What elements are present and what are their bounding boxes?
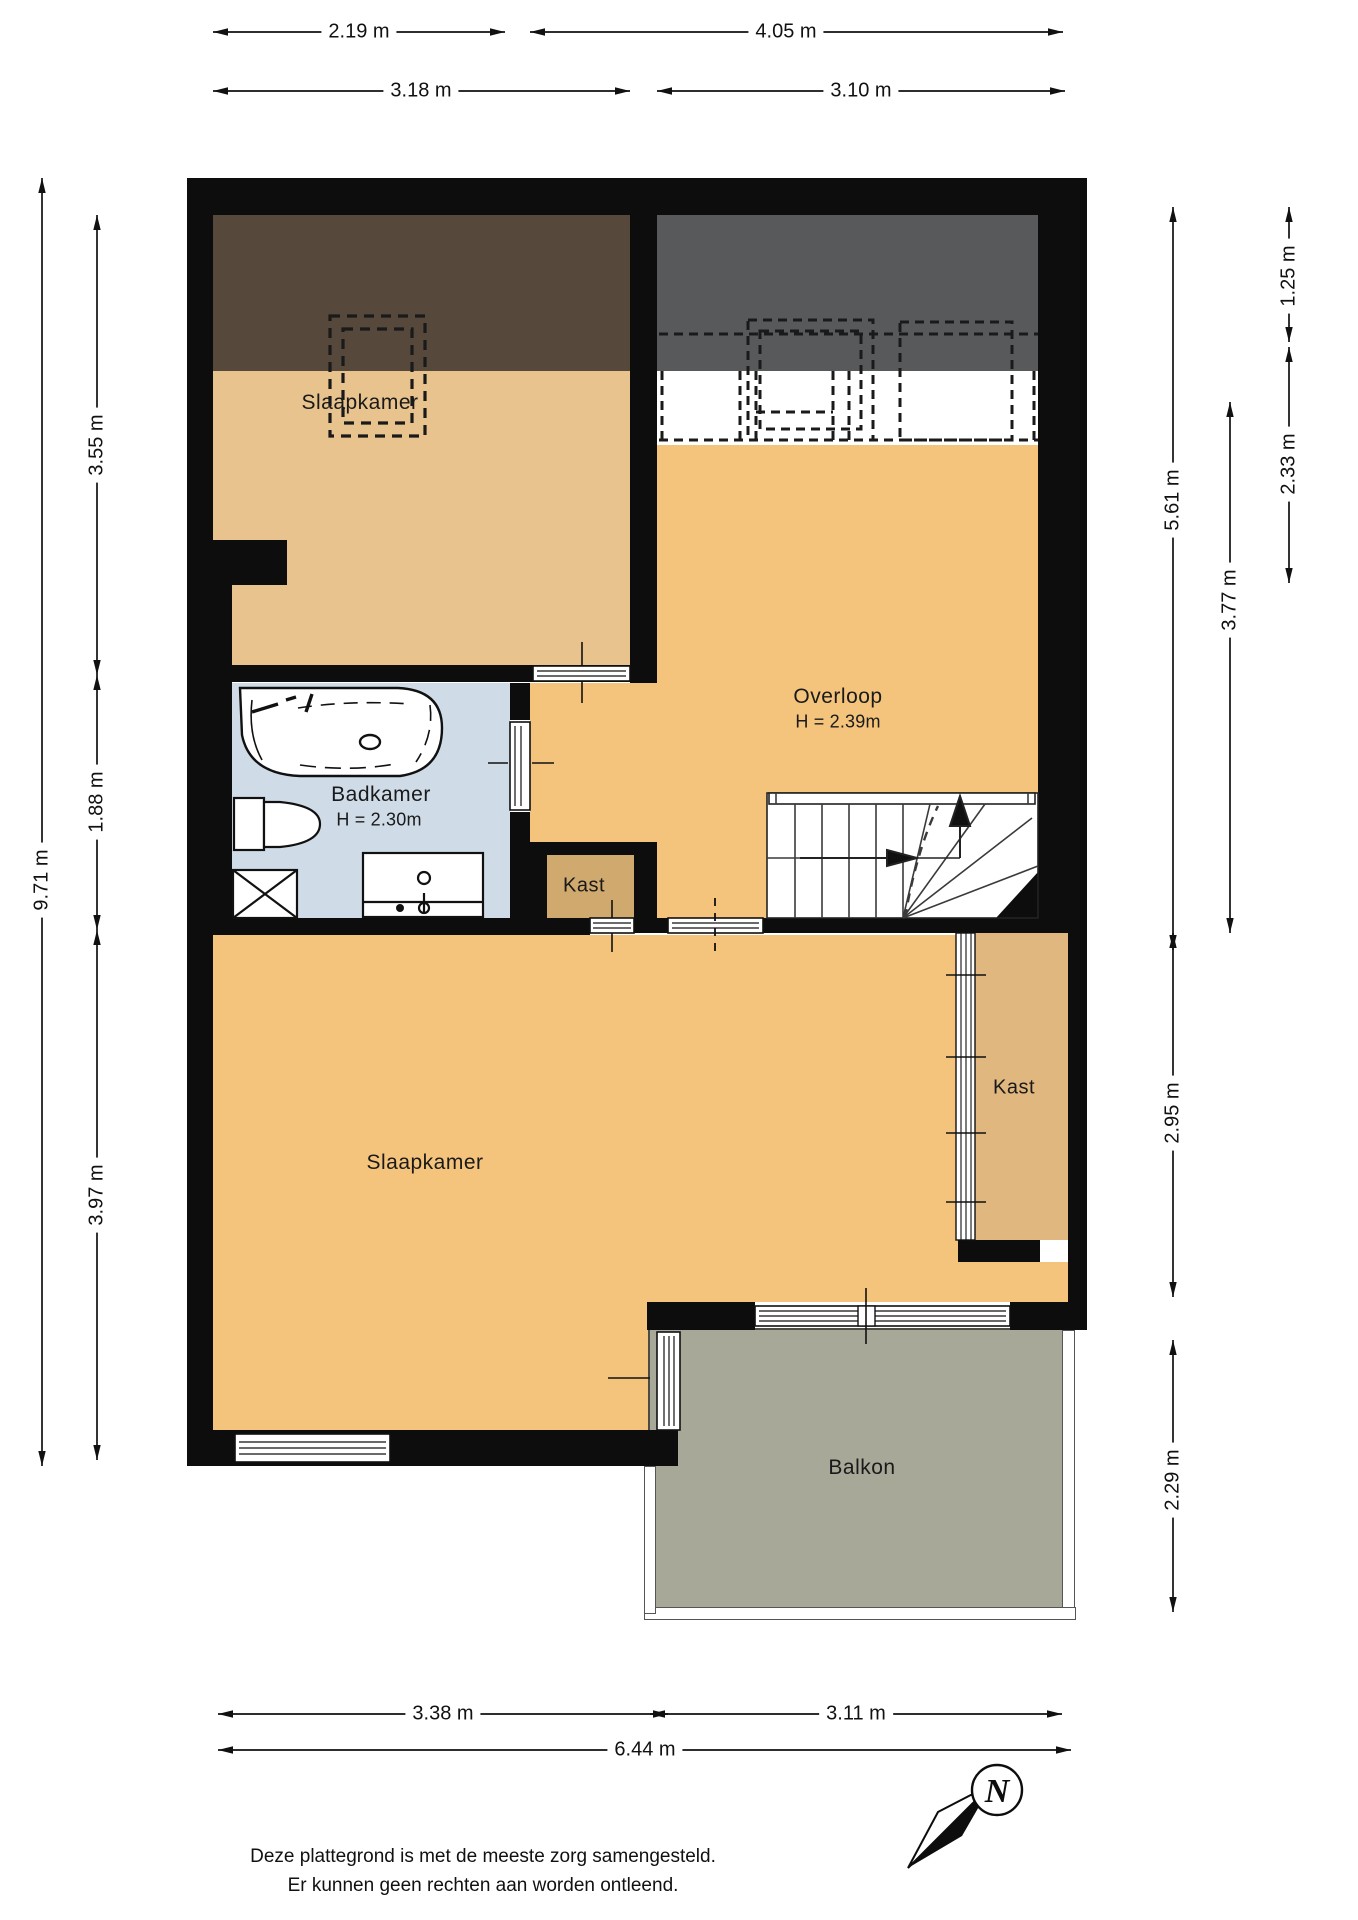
window-bottom-left	[235, 1434, 390, 1462]
skylight-dashed-box	[330, 316, 425, 436]
shaft-x-box	[233, 870, 297, 918]
label-balkon: Balkon	[828, 1456, 895, 1480]
dim-left-total: 9.71 m	[31, 842, 54, 917]
dim-top-left-upper: 2.19 m	[321, 21, 396, 44]
dim-bottom-right: 3.11 m	[819, 1703, 893, 1726]
dim-right-229: 2.29 m	[1162, 1442, 1185, 1517]
dim-right-377: 3.77 m	[1219, 562, 1242, 637]
dormer-dashed-lines	[659, 320, 1038, 443]
vanity-sink	[363, 853, 483, 917]
dim-bottom-left: 3.38 m	[405, 1703, 480, 1726]
label-kast-middle: Kast	[563, 875, 605, 898]
dim-top-right-upper: 4.05 m	[748, 21, 823, 44]
door-badkamer	[488, 722, 554, 810]
dim-top-right-lower: 3.10 m	[823, 80, 898, 103]
label-badkamer: Badkamer	[331, 783, 431, 807]
dim-left-upper: 3.55 m	[86, 407, 109, 482]
door-kast-middle	[590, 900, 634, 952]
dimension-arrows	[42, 32, 1289, 1750]
label-overloop-height: H = 2.39m	[795, 712, 880, 733]
compass-north-text: N	[984, 1773, 1011, 1810]
dim-top-left-lower: 3.18 m	[383, 80, 458, 103]
door-slaapkamer-top	[533, 642, 630, 703]
toilet	[234, 798, 320, 850]
window-balkon-front	[755, 1288, 1010, 1344]
dim-bottom-total: 6.44 m	[607, 1739, 682, 1762]
label-badkamer-height: H = 2.30m	[336, 810, 421, 831]
dim-left-lower: 3.97 m	[86, 1157, 109, 1232]
bathtub	[240, 688, 442, 776]
label-overloop: Overloop	[793, 685, 882, 709]
dim-right-233: 2.33 m	[1278, 426, 1301, 501]
stairs-direction-arrow	[800, 796, 970, 866]
dim-right-125: 1.25 m	[1278, 238, 1301, 313]
footer-disclaimer-line1: Deze plattegrond is met de meeste zorg s…	[250, 1846, 716, 1868]
door-slaapkamer-bottom	[668, 898, 763, 955]
label-kast-right: Kast	[993, 1077, 1035, 1100]
label-slaapkamer-top: Slaapkamer	[301, 391, 418, 415]
dim-left-middle: 1.88 m	[86, 764, 109, 839]
window-balkon-side	[608, 1332, 680, 1430]
footer-disclaimer-line2: Er kunnen geen rechten aan worden ontlee…	[288, 1875, 679, 1897]
sliding-door-kast-right	[946, 933, 986, 1240]
compass-icon: N	[908, 1765, 1022, 1868]
label-slaapkamer-bottom: Slaapkamer	[366, 1151, 483, 1175]
plan-linework: N	[0, 0, 1358, 1920]
dim-right-561: 5.61 m	[1162, 462, 1185, 537]
dim-right-295: 2.95 m	[1162, 1075, 1185, 1150]
floorplan-canvas: N Slaapkamer Overloop H = 2.39m Badkamer…	[0, 0, 1358, 1920]
